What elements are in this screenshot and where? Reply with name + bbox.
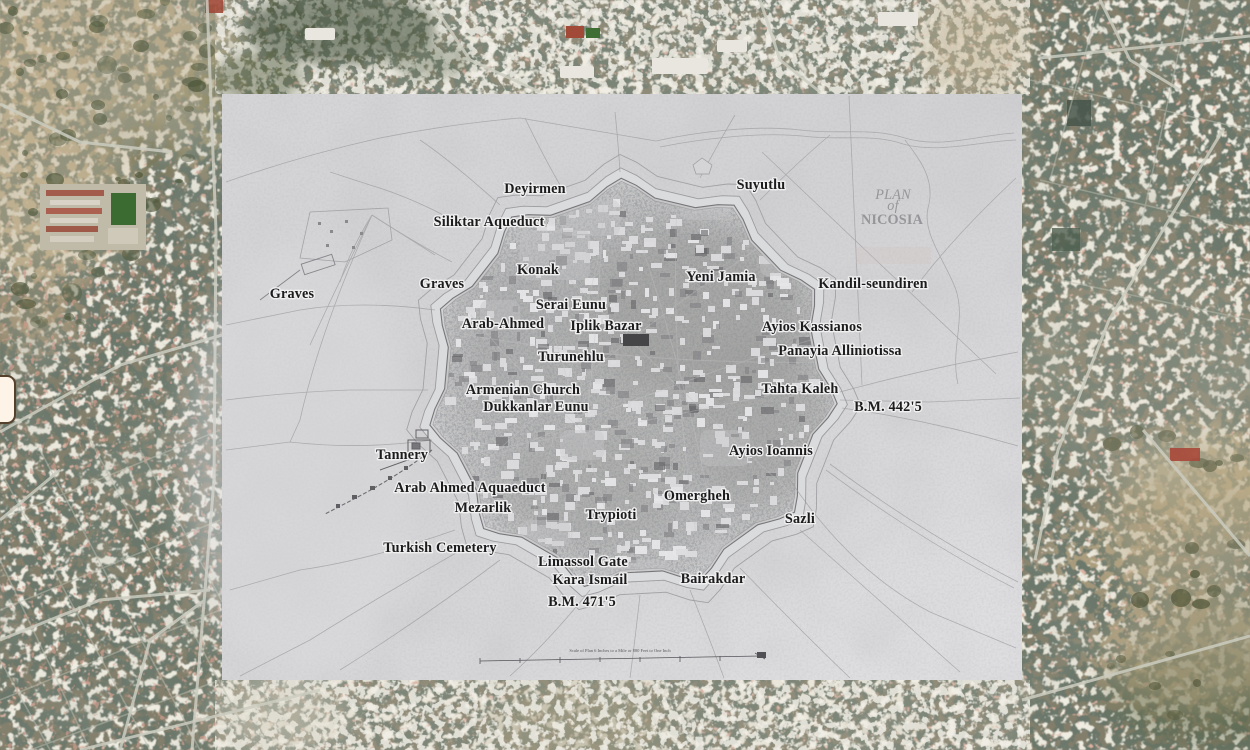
svg-text:Tannery: Tannery xyxy=(376,447,428,463)
svg-text:Sazli: Sazli xyxy=(785,511,815,527)
svg-text:Iplik Bazar: Iplik Bazar xyxy=(570,318,641,334)
svg-text:Arab-Ahmed: Arab-Ahmed xyxy=(462,316,544,332)
svg-text:Mezarlik: Mezarlik xyxy=(455,500,512,516)
svg-text:Bairakdar: Bairakdar xyxy=(681,571,746,587)
svg-text:Dukkanlar Eunu: Dukkanlar Eunu xyxy=(483,399,588,415)
svg-text:Siliktar Aqueduct: Siliktar Aqueduct xyxy=(434,214,545,230)
svg-text:NICOSIA: NICOSIA xyxy=(861,212,924,228)
svg-text:Ayios Kassianos: Ayios Kassianos xyxy=(762,319,862,335)
svg-text:Turunehlu: Turunehlu xyxy=(538,349,604,365)
svg-text:Tahta Kaleh: Tahta Kaleh xyxy=(762,381,839,397)
svg-text:Graves: Graves xyxy=(270,286,315,302)
svg-text:Panayia Alliniotissa: Panayia Alliniotissa xyxy=(778,343,901,359)
svg-text:Ayios Ioannis: Ayios Ioannis xyxy=(729,443,813,459)
svg-text:Suyutlu: Suyutlu xyxy=(737,177,786,193)
svg-text:Deyirmen: Deyirmen xyxy=(504,181,565,197)
svg-text:Graves: Graves xyxy=(420,276,465,292)
svg-text:Kandil-seundiren: Kandil-seundiren xyxy=(818,276,927,292)
svg-text:B.M. 442'5: B.M. 442'5 xyxy=(854,399,922,415)
svg-text:Omergheh: Omergheh xyxy=(664,488,730,504)
svg-text:B.M. 471'5: B.M. 471'5 xyxy=(548,594,616,610)
svg-text:Limassol Gate: Limassol Gate xyxy=(538,554,628,570)
svg-text:Konak: Konak xyxy=(517,262,559,278)
svg-text:Yeni Jamia: Yeni Jamia xyxy=(686,269,755,285)
svg-text:Scale of Plan 6 Inches to a Mi: Scale of Plan 6 Inches to a Mile or 880 … xyxy=(569,648,671,653)
svg-text:Turkish Cemetery: Turkish Cemetery xyxy=(383,540,496,556)
svg-text:Serai Eunu: Serai Eunu xyxy=(536,297,606,313)
svg-text:Kara Ismail: Kara Ismail xyxy=(552,572,627,588)
svg-text:Trypioti: Trypioti xyxy=(586,507,637,523)
svg-text:Armenian Church: Armenian Church xyxy=(466,382,580,398)
svg-text:Arab Ahmed Aquaeduct: Arab Ahmed Aquaeduct xyxy=(394,480,545,496)
